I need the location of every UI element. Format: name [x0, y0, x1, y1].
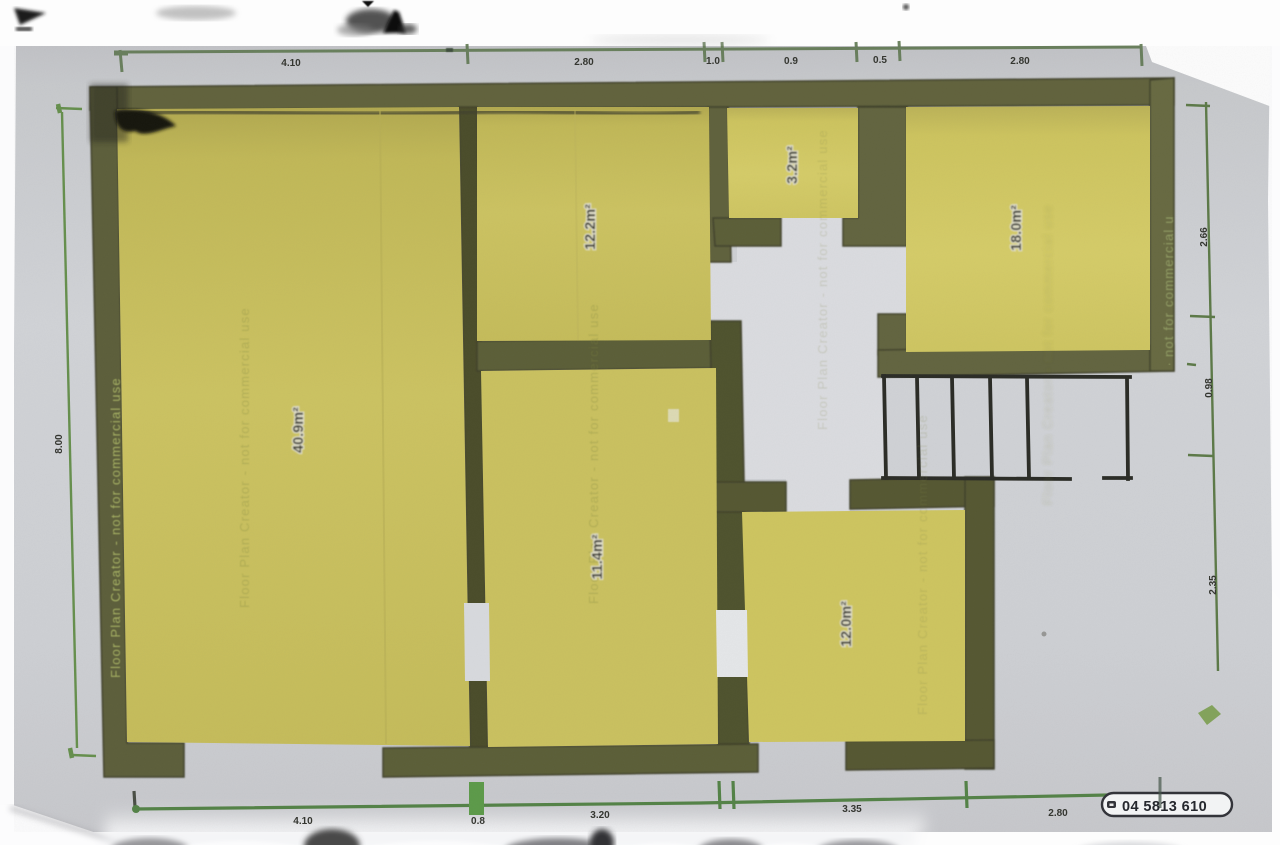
svg-text:04 5813 610: 04 5813 610 — [1122, 799, 1207, 815]
